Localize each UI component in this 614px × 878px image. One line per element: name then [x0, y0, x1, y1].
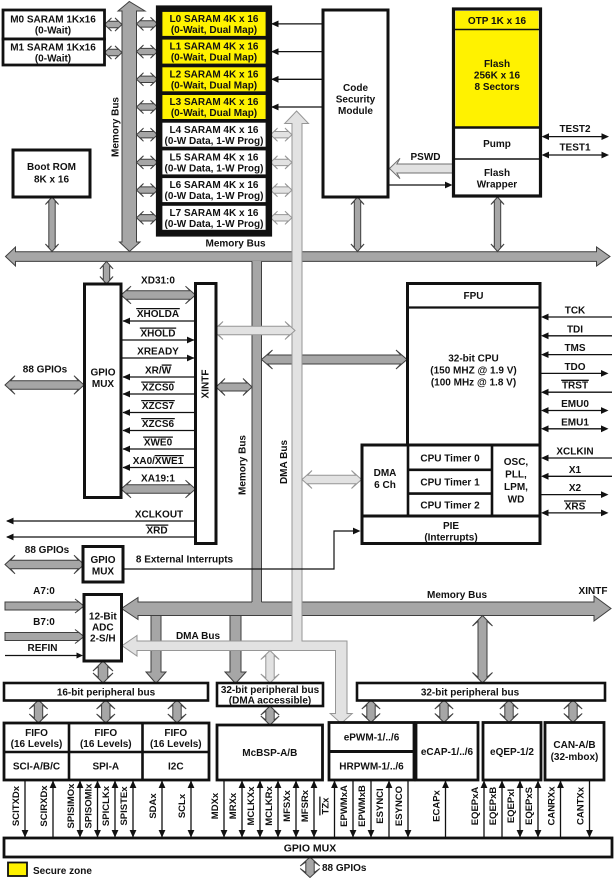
svg-text:TZx: TZx — [321, 797, 332, 815]
svg-text:XRS: XRS — [565, 501, 586, 512]
svg-text:32-bit peripheral bus: 32-bit peripheral bus — [221, 685, 320, 696]
svg-text:ESYNCI: ESYNCI — [375, 788, 386, 823]
svg-text:8 Sectors: 8 Sectors — [474, 82, 519, 93]
svg-text:OSC,: OSC, — [504, 457, 529, 468]
svg-text:32-bit peripheral bus: 32-bit peripheral bus — [421, 688, 520, 699]
svg-text:ECAPx: ECAPx — [432, 789, 443, 821]
svg-text:PLL,: PLL, — [505, 470, 527, 481]
svg-text:FPU: FPU — [464, 291, 484, 302]
svg-text:(16 Levels): (16 Levels) — [150, 739, 202, 750]
svg-text:MCLKRx: MCLKRx — [264, 785, 275, 825]
svg-text:SCI-A/B/C: SCI-A/B/C — [13, 762, 60, 773]
svg-text:SDAx: SDAx — [148, 793, 159, 819]
svg-text:16-bit peripheral bus: 16-bit peripheral bus — [57, 688, 156, 699]
svg-text:McBSP-A/B: McBSP-A/B — [242, 748, 297, 759]
svg-text:256K x 16: 256K x 16 — [474, 71, 521, 82]
svg-text:Pump: Pump — [483, 139, 511, 150]
svg-text:L6 SARAM 4K x 16: L6 SARAM 4K x 16 — [170, 180, 259, 191]
svg-text:88 GPIOs: 88 GPIOs — [322, 863, 367, 874]
svg-text:(Interrupts): (Interrupts) — [424, 533, 477, 544]
svg-text:XHOLD: XHOLD — [141, 329, 176, 340]
svg-text:GPIO: GPIO — [90, 555, 115, 566]
svg-text:CAN-A/B: CAN-A/B — [553, 740, 595, 751]
svg-text:XZCS6: XZCS6 — [142, 419, 175, 430]
svg-text:XCLKIN: XCLKIN — [556, 447, 593, 458]
svg-text:DMA: DMA — [374, 468, 397, 479]
svg-text:GPIO: GPIO — [90, 368, 115, 379]
svg-text:(0-W Data, 1-W Prog): (0-W Data, 1-W Prog) — [165, 136, 264, 147]
svg-text:(0-W Data, 1-W Prog): (0-W Data, 1-W Prog) — [165, 164, 264, 175]
svg-text:SPISOMIx: SPISOMIx — [84, 783, 95, 829]
svg-text:HRPWM-1/../6: HRPWM-1/../6 — [339, 762, 404, 773]
svg-text:L5 SARAM 4K x 16: L5 SARAM 4K x 16 — [170, 153, 259, 164]
svg-text:Flash: Flash — [484, 59, 510, 70]
svg-text:EPWMxB: EPWMxB — [357, 785, 368, 827]
svg-text:EQEPxS: EQEPxS — [524, 787, 535, 825]
svg-text:PIE: PIE — [443, 521, 459, 532]
svg-text:XZCS0: XZCS0 — [142, 383, 175, 394]
svg-text:SPICLKx: SPICLKx — [101, 785, 112, 826]
svg-text:CPU Timer 2: CPU Timer 2 — [420, 501, 480, 512]
svg-text:XD31:0: XD31:0 — [141, 276, 175, 287]
svg-text:B7:0: B7:0 — [33, 617, 55, 628]
svg-text:M1 SARAM 1Kx16: M1 SARAM 1Kx16 — [10, 43, 96, 54]
svg-text:XA19:1: XA19:1 — [141, 474, 175, 485]
svg-text:XINTF: XINTF — [201, 370, 212, 399]
svg-text:XHOLDA: XHOLDA — [137, 309, 179, 320]
svg-text:TMS: TMS — [564, 343, 585, 354]
svg-text:SCIRXDx: SCIRXDx — [39, 785, 50, 827]
svg-text:MFSRx: MFSRx — [300, 789, 311, 822]
svg-text:CANRXx: CANRXx — [547, 786, 558, 826]
svg-text:(0-Wait, Dual Map): (0-Wait, Dual Map) — [171, 25, 257, 36]
svg-text:12-Bit: 12-Bit — [89, 612, 117, 623]
svg-text:XCLKOUT: XCLKOUT — [135, 510, 183, 521]
svg-text:MDXx: MDXx — [210, 792, 221, 819]
svg-text:(16 Levels): (16 Levels) — [80, 739, 132, 750]
svg-text:OTP 1K x 16: OTP 1K x 16 — [468, 16, 527, 27]
svg-text:EMU1: EMU1 — [561, 417, 589, 428]
svg-text:(0-W Data, 1-W Prog): (0-W Data, 1-W Prog) — [165, 191, 264, 202]
svg-text:MCLKXx: MCLKXx — [246, 786, 257, 826]
svg-text:CPU Timer 1: CPU Timer 1 — [420, 478, 480, 489]
svg-text:TEST1: TEST1 — [559, 143, 591, 154]
svg-text:(100 MHz @ 1.8 V): (100 MHz @ 1.8 V) — [431, 378, 516, 389]
svg-text:SCLx: SCLx — [177, 793, 188, 818]
svg-text:(150 MHZ @ 1.9 V): (150 MHZ @ 1.9 V) — [430, 366, 516, 377]
svg-text:A7:0: A7:0 — [33, 586, 55, 597]
svg-text:Code: Code — [343, 83, 368, 94]
svg-text:L1 SARAM 4K x 16: L1 SARAM 4K x 16 — [170, 42, 259, 53]
svg-text:EQEPxB: EQEPxB — [488, 787, 499, 826]
svg-text:Module: Module — [338, 106, 373, 117]
svg-text:EMU0: EMU0 — [561, 399, 589, 410]
svg-text:L4 SARAM 4K x 16: L4 SARAM 4K x 16 — [170, 125, 259, 136]
svg-text:Memory Bus: Memory Bus — [111, 97, 122, 157]
svg-text:(0-Wait, Dual Map): (0-Wait, Dual Map) — [171, 108, 257, 119]
svg-text:6 Ch: 6 Ch — [374, 480, 396, 491]
svg-text:FIFO: FIFO — [25, 728, 48, 739]
svg-text:Secure zone: Secure zone — [33, 866, 92, 877]
svg-text:L0 SARAM 4K x 16: L0 SARAM 4K x 16 — [170, 14, 259, 25]
svg-text:(0-W Data, 1-W Prog): (0-W Data, 1-W Prog) — [165, 219, 264, 230]
svg-text:Flash: Flash — [484, 168, 510, 179]
svg-text:SPISTEx: SPISTEx — [119, 786, 130, 826]
svg-text:XREADY: XREADY — [137, 347, 179, 358]
svg-text:X1: X1 — [569, 465, 582, 476]
svg-text:FIFO: FIFO — [94, 728, 117, 739]
svg-text:CPU Timer 0: CPU Timer 0 — [420, 454, 480, 465]
svg-text:XZCS7: XZCS7 — [142, 401, 175, 412]
svg-text:L3 SARAM 4K x 16: L3 SARAM 4K x 16 — [170, 97, 259, 108]
svg-text:ePWM-1/../6: ePWM-1/../6 — [344, 733, 400, 744]
svg-text:(16 Levels): (16 Levels) — [11, 739, 63, 750]
svg-text:SCITXDx: SCITXDx — [11, 785, 22, 826]
svg-text:8K x 16: 8K x 16 — [34, 175, 69, 186]
svg-text:2-S/H: 2-S/H — [90, 634, 116, 645]
svg-text:EQEPxI: EQEPxI — [506, 789, 517, 823]
svg-text:GPIO MUX: GPIO MUX — [284, 843, 337, 855]
svg-text:(0-Wait, Dual Map): (0-Wait, Dual Map) — [171, 53, 257, 64]
svg-text:XWE0: XWE0 — [144, 438, 173, 449]
svg-text:TEST2: TEST2 — [559, 124, 591, 135]
svg-text:L2 SARAM 4K x 16: L2 SARAM 4K x 16 — [170, 69, 259, 80]
svg-text:SPI-A: SPI-A — [92, 762, 119, 773]
svg-text:FIFO: FIFO — [164, 728, 187, 739]
svg-text:TDI: TDI — [567, 324, 583, 335]
svg-text:M0 SARAM 1Kx16: M0 SARAM 1Kx16 — [10, 15, 96, 26]
svg-text:(0-Wait): (0-Wait) — [35, 26, 71, 37]
svg-text:XRD: XRD — [146, 526, 167, 537]
svg-text:Memory Bus: Memory Bus — [427, 590, 487, 601]
svg-text:TCK: TCK — [565, 306, 586, 317]
svg-text:MUX: MUX — [92, 379, 115, 390]
svg-text:eCAP-1/../6: eCAP-1/../6 — [421, 747, 474, 758]
svg-text:Boot ROM: Boot ROM — [27, 162, 76, 173]
svg-text:CANTXx: CANTXx — [576, 786, 587, 825]
svg-text:(0-Wait, Dual Map): (0-Wait, Dual Map) — [171, 80, 257, 91]
svg-text:MRXx: MRXx — [228, 792, 239, 819]
svg-text:TRST: TRST — [562, 381, 588, 392]
svg-text:8 External Interrupts: 8 External Interrupts — [136, 555, 234, 566]
svg-text:ADC: ADC — [92, 623, 114, 634]
svg-text:Memory Bus: Memory Bus — [238, 435, 249, 495]
svg-text:DMA Bus: DMA Bus — [279, 440, 290, 485]
svg-text:EQEPxA: EQEPxA — [470, 787, 481, 826]
svg-text:Memory Bus: Memory Bus — [205, 239, 265, 250]
svg-text:DMA Bus: DMA Bus — [176, 631, 221, 642]
svg-text:(0-Wait): (0-Wait) — [35, 54, 71, 65]
svg-text:Security: Security — [336, 95, 376, 106]
svg-text:eQEP-1/2: eQEP-1/2 — [490, 747, 534, 758]
svg-text:(32-mbox): (32-mbox) — [551, 752, 599, 763]
svg-text:88 GPIOs: 88 GPIOs — [23, 365, 68, 376]
svg-text:ESYNCO: ESYNCO — [394, 786, 405, 826]
svg-text:Wrapper: Wrapper — [477, 180, 517, 191]
svg-text:XR/W: XR/W — [145, 366, 172, 377]
svg-text:(DMA accessible): (DMA accessible) — [229, 696, 311, 707]
svg-text:X2: X2 — [569, 483, 582, 494]
svg-text:88 GPIOs: 88 GPIOs — [25, 545, 70, 556]
svg-text:L7 SARAM 4K x 16: L7 SARAM 4K x 16 — [170, 208, 259, 219]
svg-text:PSWD: PSWD — [411, 152, 441, 163]
svg-text:LPM,: LPM, — [504, 482, 528, 493]
svg-text:XINTF: XINTF — [579, 586, 608, 597]
svg-text:MFSXx: MFSXx — [282, 789, 293, 821]
svg-text:EPWMxA: EPWMxA — [339, 785, 350, 827]
svg-text:REFIN: REFIN — [28, 643, 58, 654]
svg-text:MUX: MUX — [92, 567, 115, 578]
svg-text:SPISIMOx: SPISIMOx — [66, 783, 77, 829]
svg-text:WD: WD — [508, 495, 525, 506]
svg-text:I2C: I2C — [168, 762, 184, 773]
svg-text:32-bit CPU: 32-bit CPU — [448, 354, 499, 365]
svg-text:XA0/XWE1: XA0/XWE1 — [133, 456, 184, 467]
svg-text:TDO: TDO — [564, 362, 585, 373]
